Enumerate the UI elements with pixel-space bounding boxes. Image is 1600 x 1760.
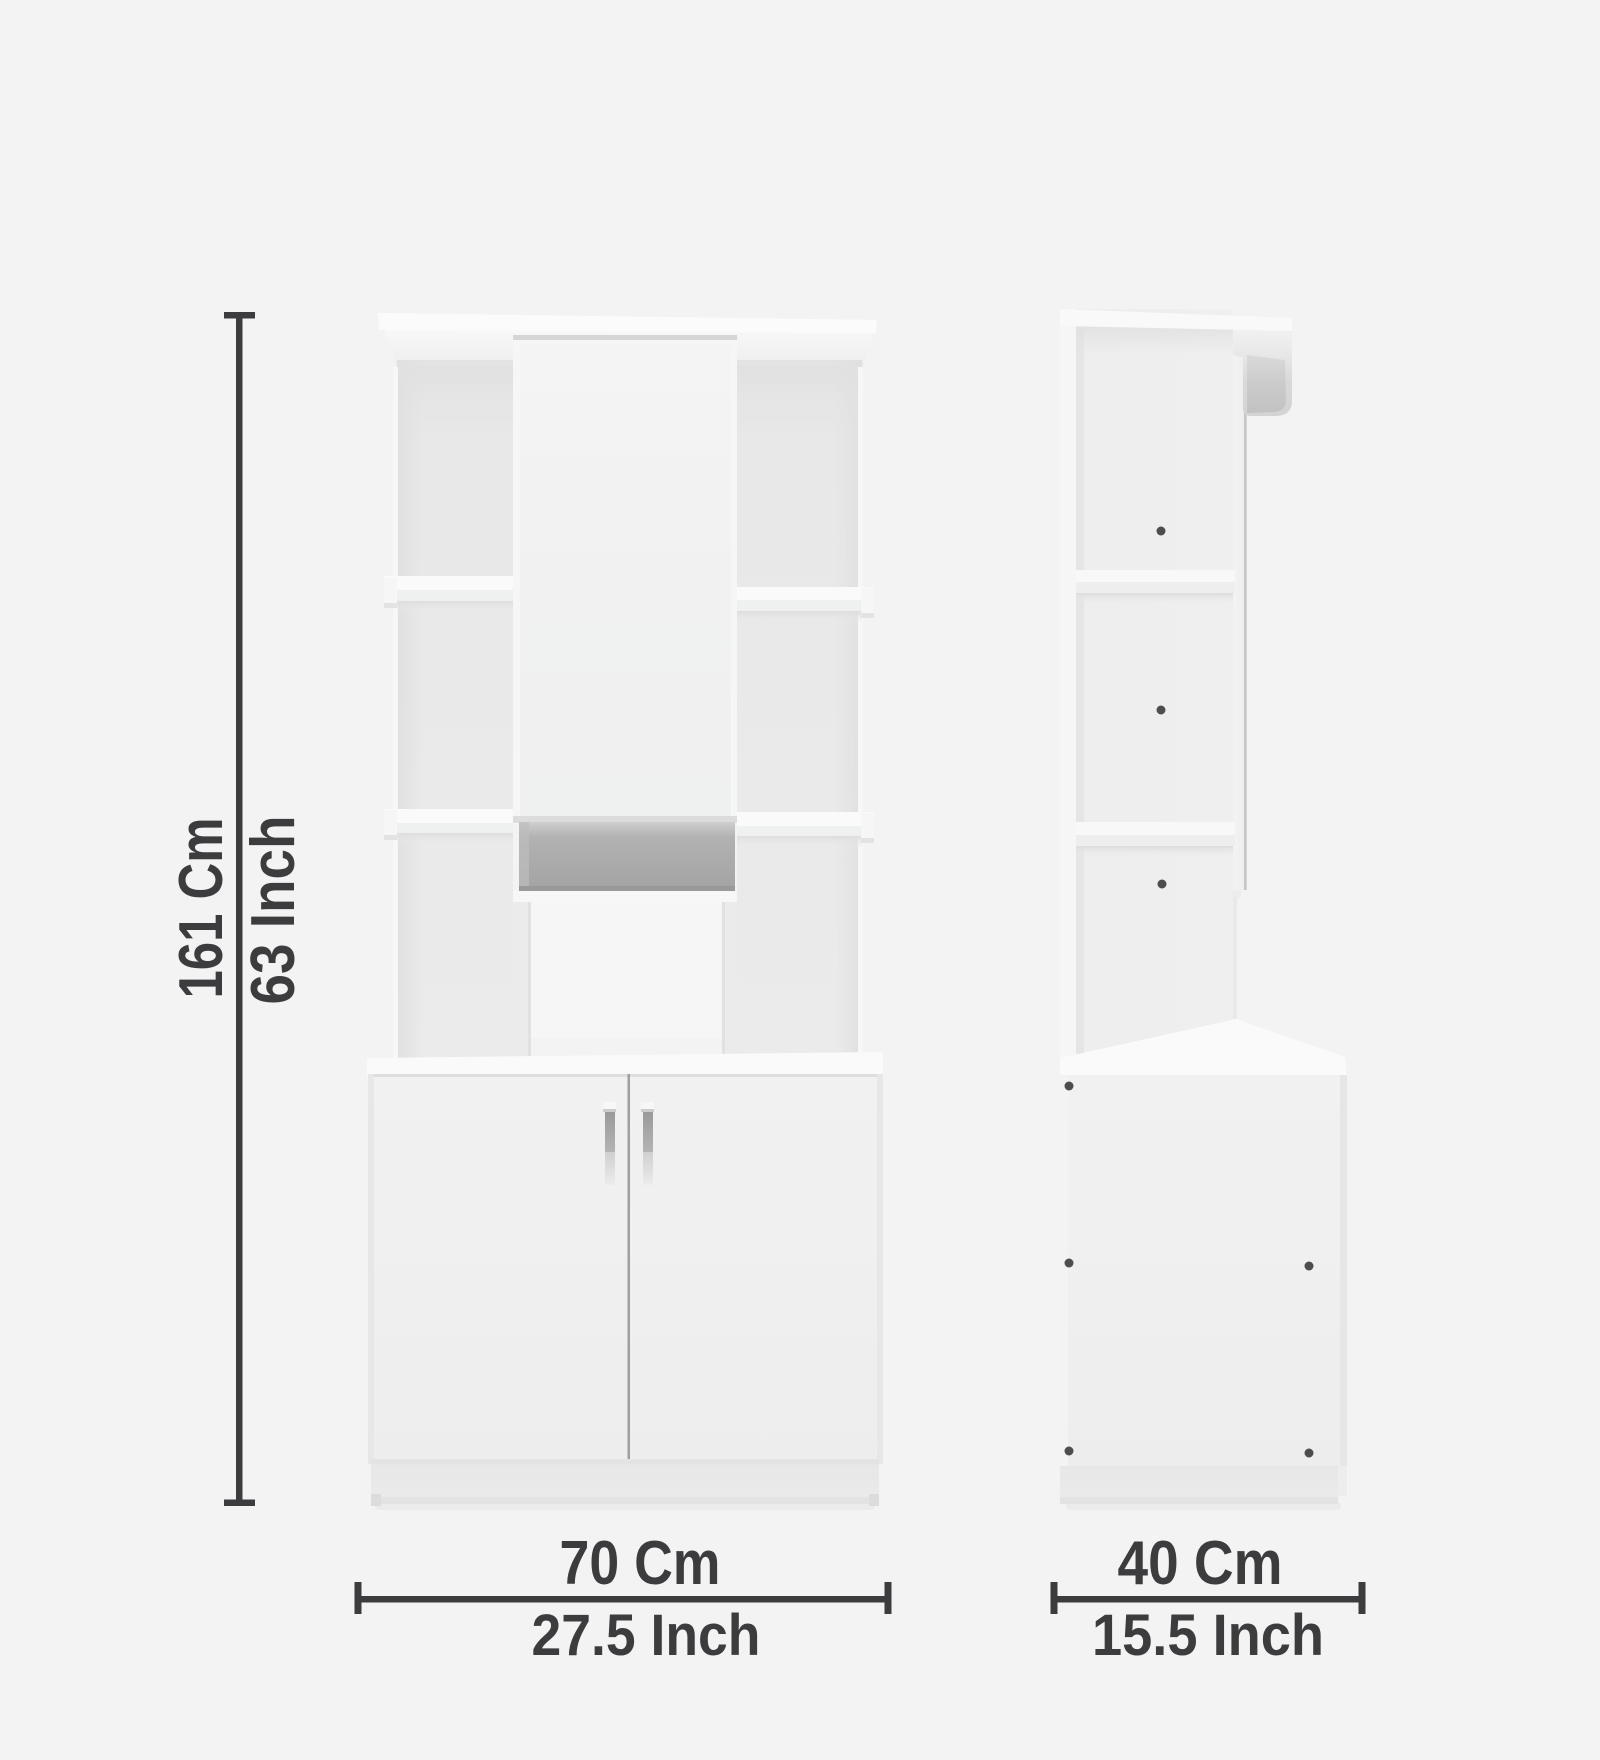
svg-text:27.5 Inch: 27.5 Inch bbox=[532, 1603, 761, 1668]
svg-text:63 Inch: 63 Inch bbox=[239, 816, 308, 1005]
svg-text:70 Cm: 70 Cm bbox=[560, 1529, 721, 1598]
svg-text:40 Cm: 40 Cm bbox=[1118, 1529, 1283, 1598]
svg-text:15.5 Inch: 15.5 Inch bbox=[1092, 1603, 1324, 1668]
svg-text:161 Cm: 161 Cm bbox=[167, 818, 236, 999]
